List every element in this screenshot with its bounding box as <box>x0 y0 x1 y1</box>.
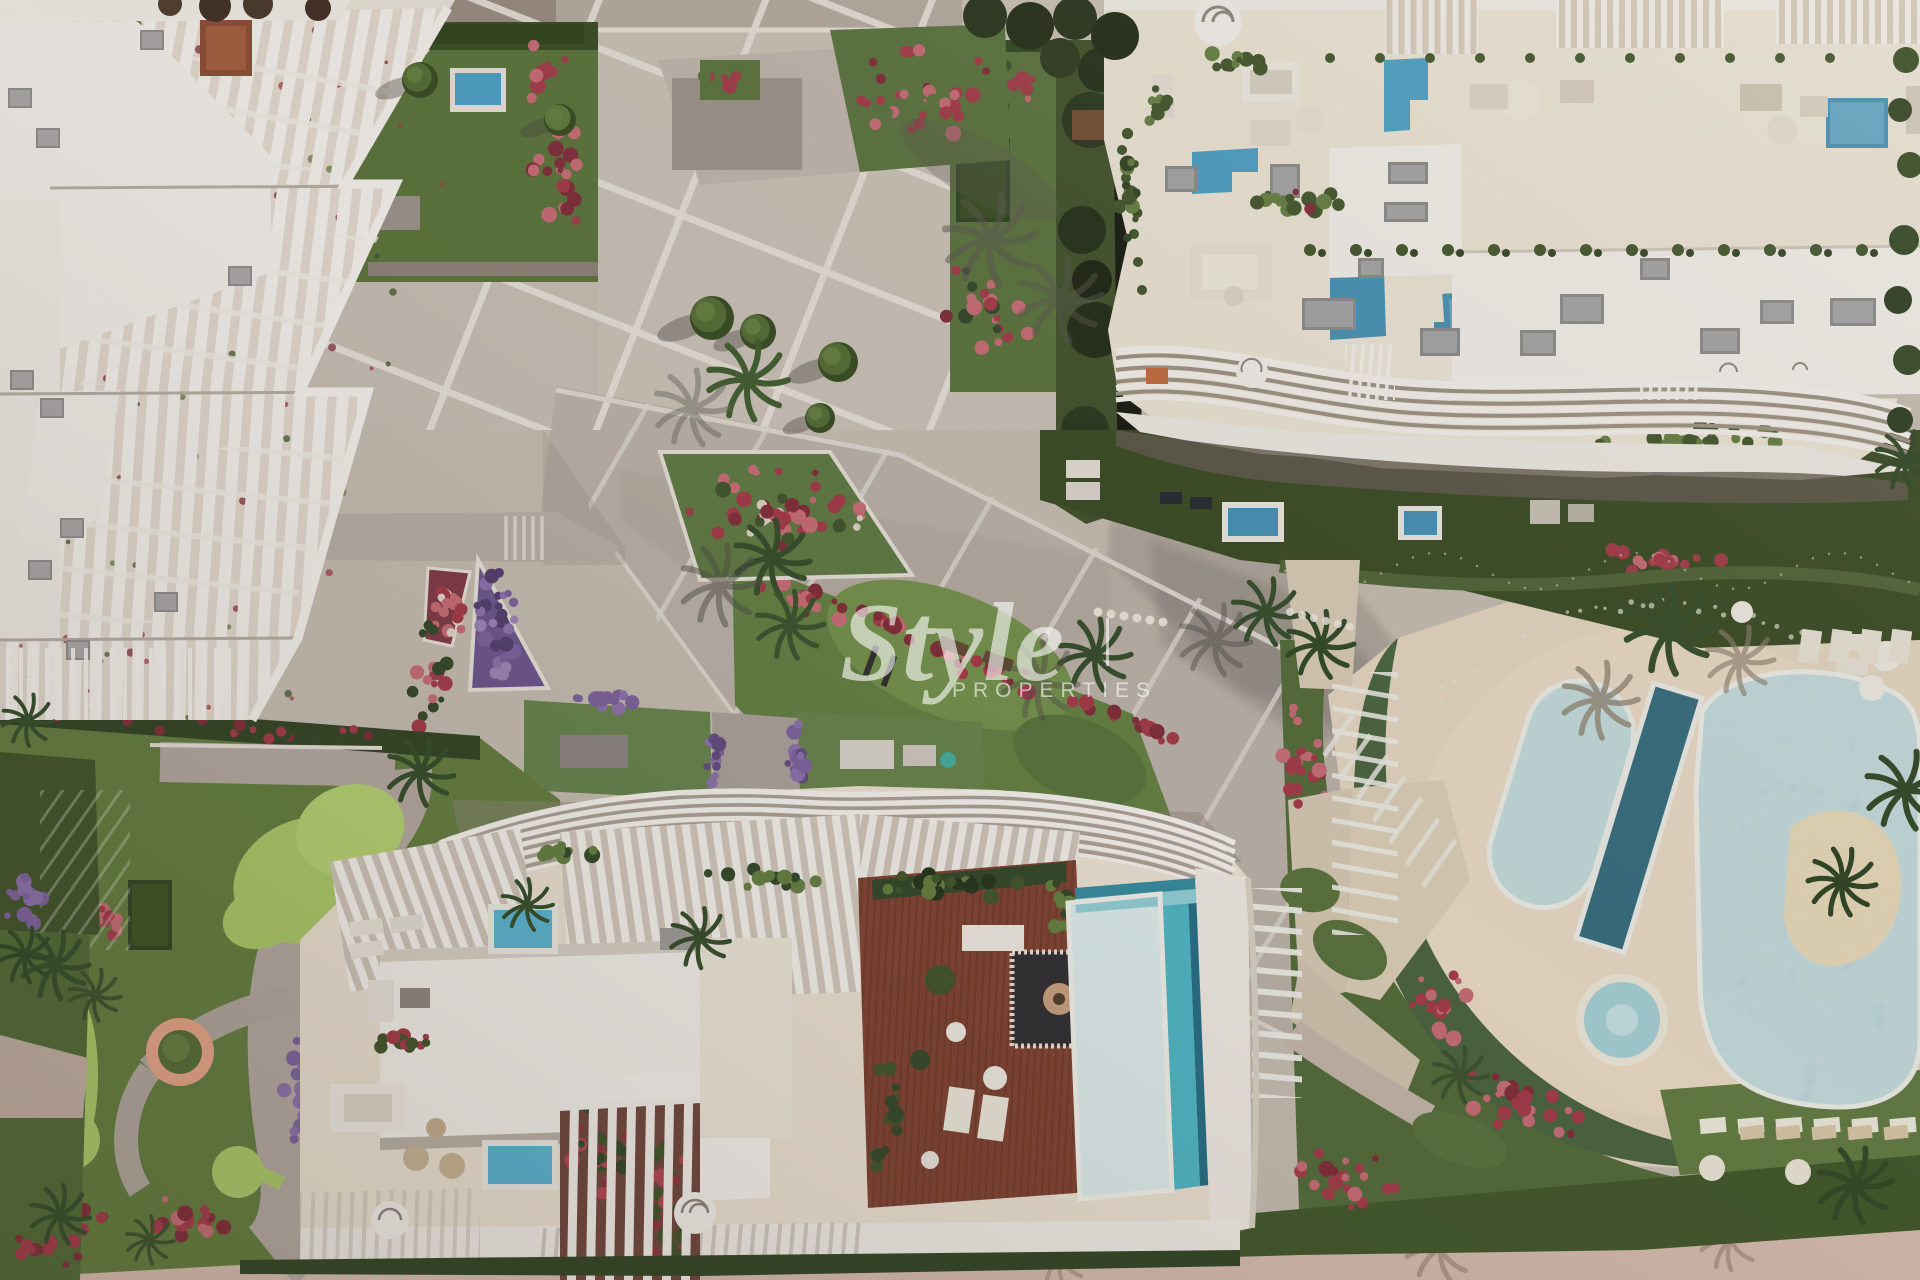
svg-text:PROPERTIES: PROPERTIES <box>952 679 1157 702</box>
